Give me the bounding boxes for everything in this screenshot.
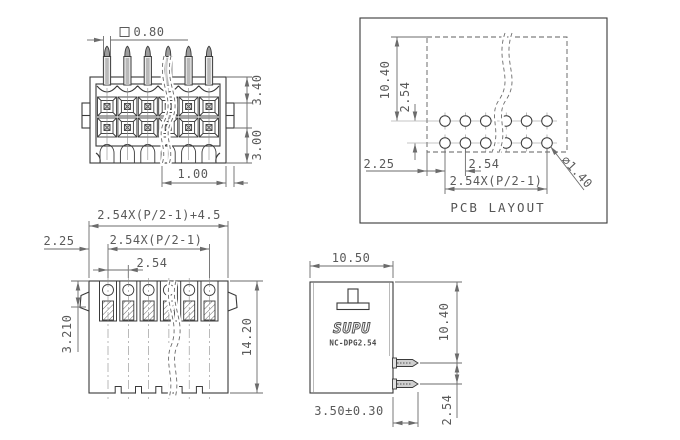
pcb-dim-height: 10.40: [379, 61, 391, 100]
top-dim-pitch: 2.54: [137, 257, 168, 269]
side-dim-width: 10.50: [332, 252, 371, 264]
front-dim-upper-height: 3.40: [251, 75, 263, 106]
top-view: [44, 221, 263, 399]
front-dim-edge: 1.00: [178, 168, 209, 180]
front-view: [82, 36, 252, 187]
pcb-layout-title: PCB LAYOUT: [450, 202, 545, 215]
side-pins: [393, 358, 419, 389]
pcb-dim-row-pitch: 2.54: [399, 82, 411, 113]
pcb-dim-col-pitch: 2.54: [469, 158, 500, 170]
square-symbol-icon: [120, 27, 130, 37]
pcb-dim-edge-offset: 2.25: [364, 158, 395, 170]
top-dim-body-depth: 14.20: [241, 318, 253, 357]
side-model-number: NC-DPG2.54: [329, 339, 376, 347]
top-dim-contact-depth: 3.210: [61, 315, 73, 354]
side-brand-logo: SUPU: [333, 322, 371, 336]
top-dim-span: 2.54X(P/2-1): [110, 234, 203, 246]
front-dim-pin-square: 0.80: [120, 26, 165, 38]
side-dim-height: 10.40: [438, 303, 450, 342]
engineering-drawing: 0.80 3.40 3.00 1.00 10.40 2.54 2.25 2.54…: [0, 0, 680, 440]
pcb-dim-col-span: 2.54X(P/2-1): [450, 175, 543, 187]
front-dim-pin-square-value: 0.80: [134, 25, 165, 39]
front-dim-lower-height: 3.00: [251, 130, 263, 161]
pcb-layout-view: [360, 18, 607, 223]
side-dim-pin-length: 3.50±0.30: [314, 405, 384, 417]
side-dim-pin-pitch: 2.54: [441, 395, 453, 426]
top-dim-total-width: 2.54X(P/2-1)+4.5: [97, 209, 221, 221]
top-dim-edge-offset: 2.25: [44, 235, 75, 247]
pcb-break: [492, 33, 512, 152]
